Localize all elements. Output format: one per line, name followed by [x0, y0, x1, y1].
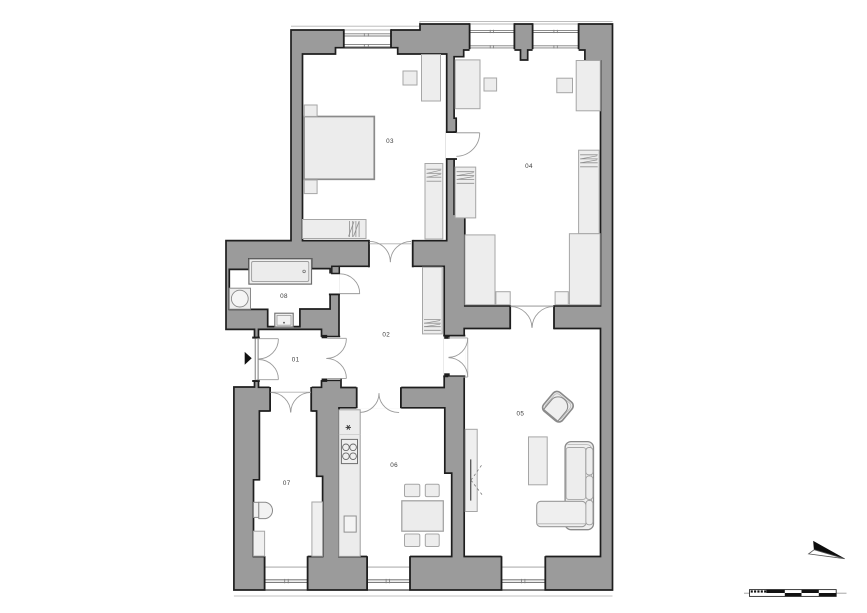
svg-text:01: 01: [292, 357, 300, 364]
svg-text:08: 08: [280, 293, 288, 300]
svg-text:06: 06: [390, 462, 398, 469]
svg-text:02: 02: [382, 332, 390, 339]
svg-text:05: 05: [516, 411, 524, 418]
svg-text:04: 04: [525, 163, 533, 170]
svg-text:03: 03: [386, 138, 394, 145]
svg-text:07: 07: [283, 480, 291, 487]
